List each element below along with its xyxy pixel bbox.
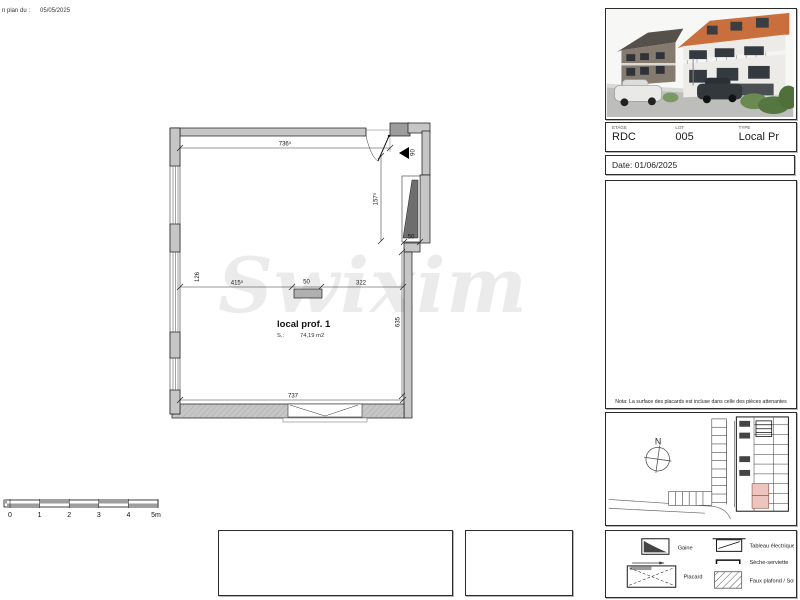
equipment-symbol (294, 289, 322, 298)
seche-serviette-icon (716, 560, 739, 564)
scale-tick-3: 3 (97, 512, 101, 519)
dim-seg-mid: 50 (303, 280, 310, 286)
footer-box-right (465, 530, 573, 596)
highlighted-lot (752, 484, 769, 496)
room-area-value: 74,19 m2 (300, 333, 324, 339)
dim-right-height: 635 (396, 316, 402, 327)
scale-tick-2: 2 (67, 512, 71, 519)
dim-seg-right: 322 (356, 281, 367, 287)
entrance-door (366, 128, 390, 161)
revision-label: n plan du : (2, 8, 30, 14)
dim-entry-depth: 157⁵ (373, 192, 380, 205)
dim-left-offset: 126 (195, 271, 201, 282)
watermark: Swixim (218, 248, 528, 324)
date-field: Date: 01/06/2025 (605, 155, 795, 175)
title-block: ETAGE RDC LOT 005 TYPE Local Pr (605, 122, 797, 152)
room-label: local prof. 1 S.: 74,19 m2 (277, 319, 331, 339)
field-etage-value: RDC (612, 131, 669, 143)
detail-box: Nota: La surface des placards est inclus… (605, 180, 797, 409)
dim-seg-left: 415⁵ (231, 280, 244, 287)
scale-tick-1: 1 (38, 512, 42, 519)
dim-bottom-width: 737 (288, 394, 299, 400)
nota-text: Nota: La surface des placards est inclus… (606, 399, 796, 405)
field-type-value: Local Pr (739, 131, 796, 143)
legend-label-placard: Placard (684, 575, 703, 581)
legend-label-gaine: Gaine (678, 545, 693, 551)
building-render-image (606, 9, 794, 117)
legend-label-tableau: Tableau électrique (749, 543, 794, 549)
highlighted-lot-2 (752, 496, 769, 509)
dim-niche-width: 50 (408, 235, 415, 241)
left-wall-windows (170, 128, 180, 414)
legend: Gaine Placard Tableau électrique (605, 530, 797, 598)
footer-box-left (218, 530, 453, 596)
field-etage: ETAGE RDC (606, 123, 669, 151)
entrance-arrow-icon (399, 147, 409, 159)
site-plan-drawing: N (606, 413, 794, 523)
field-etage-label: ETAGE (612, 125, 669, 130)
legend-label-faux-plafond: Faux plafond / Soffite (749, 578, 794, 584)
room-area-label: S.: (277, 333, 284, 339)
legend-drawing: Gaine Placard Tableau électrique (606, 531, 794, 595)
scale-tick-4: 4 (126, 512, 130, 519)
field-lot-label: LOT (675, 125, 732, 130)
revision-note: n plan du : 05/05/2025 (2, 8, 70, 14)
gaine-icon (642, 539, 669, 555)
gaine-symbol (403, 180, 418, 238)
north-arrow-icon: N (642, 436, 673, 474)
revision-date: 05/05/2025 (40, 8, 70, 14)
building-footprint (736, 417, 788, 511)
field-type-label: TYPE (739, 125, 796, 130)
bottom-window (283, 404, 367, 422)
dim-top-width: 736⁵ (279, 141, 292, 148)
field-type: TYPE Local Pr (733, 123, 796, 151)
placard-icon (627, 562, 675, 588)
scale-tick-5m: 5m (151, 512, 161, 519)
building-render (605, 8, 797, 120)
walls (170, 123, 430, 422)
site-plan: N (605, 412, 797, 526)
parking-row (669, 492, 712, 506)
dim-entry-width: 90 (411, 149, 417, 156)
faux-plafond-icon (715, 572, 742, 588)
floor-plan-sheet: n plan du : 05/05/2025 Swixim (0, 0, 800, 600)
field-lot-value: 005 (675, 131, 732, 143)
legend-label-seche: Sèche-serviette (749, 560, 788, 566)
parking-column (712, 419, 727, 502)
tableau-electrique-icon (713, 539, 746, 552)
duct-niche (402, 176, 420, 242)
room-name: local prof. 1 (277, 319, 331, 330)
north-label: N (655, 436, 661, 446)
field-lot: LOT 005 (669, 123, 732, 151)
dimensions: 736⁵ 157⁵ 90 415⁵ 50 322 126 635 50 (177, 138, 423, 405)
scale-tick-0: 0 (8, 512, 12, 519)
scale-bar: 0 1 2 3 4 5m (4, 499, 161, 519)
